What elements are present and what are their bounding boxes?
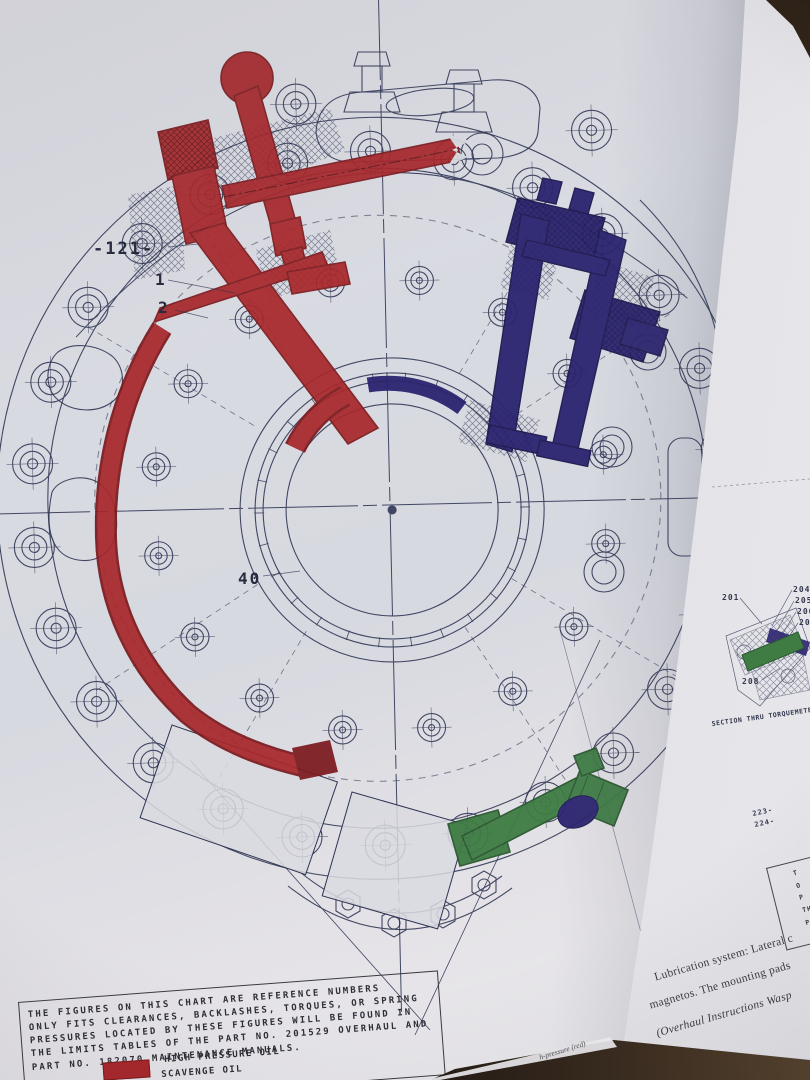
callout-208: 208 (742, 677, 759, 686)
callout-205: 205 (795, 596, 810, 605)
torquemeter-caption: SECTION THRU TORQUEMETER (711, 705, 810, 728)
callout-223: 223- (752, 806, 774, 818)
torquemeter-section-figure: 201 204 205 206 207 208 223- 224- SECTIO… (0, 0, 810, 1080)
torquemeter-callouts: 201 204 205 206 207 208 223- 224- SECTIO… (711, 585, 810, 829)
callout-204: 204 (793, 585, 810, 594)
book-photo: -121- 1 2 40 201 204 205 (0, 0, 810, 1080)
callout-207: 207 (799, 618, 810, 627)
callout-201: 201 (722, 593, 739, 602)
callout-224: 224- (754, 817, 776, 829)
callout-206: 206 (797, 607, 810, 616)
